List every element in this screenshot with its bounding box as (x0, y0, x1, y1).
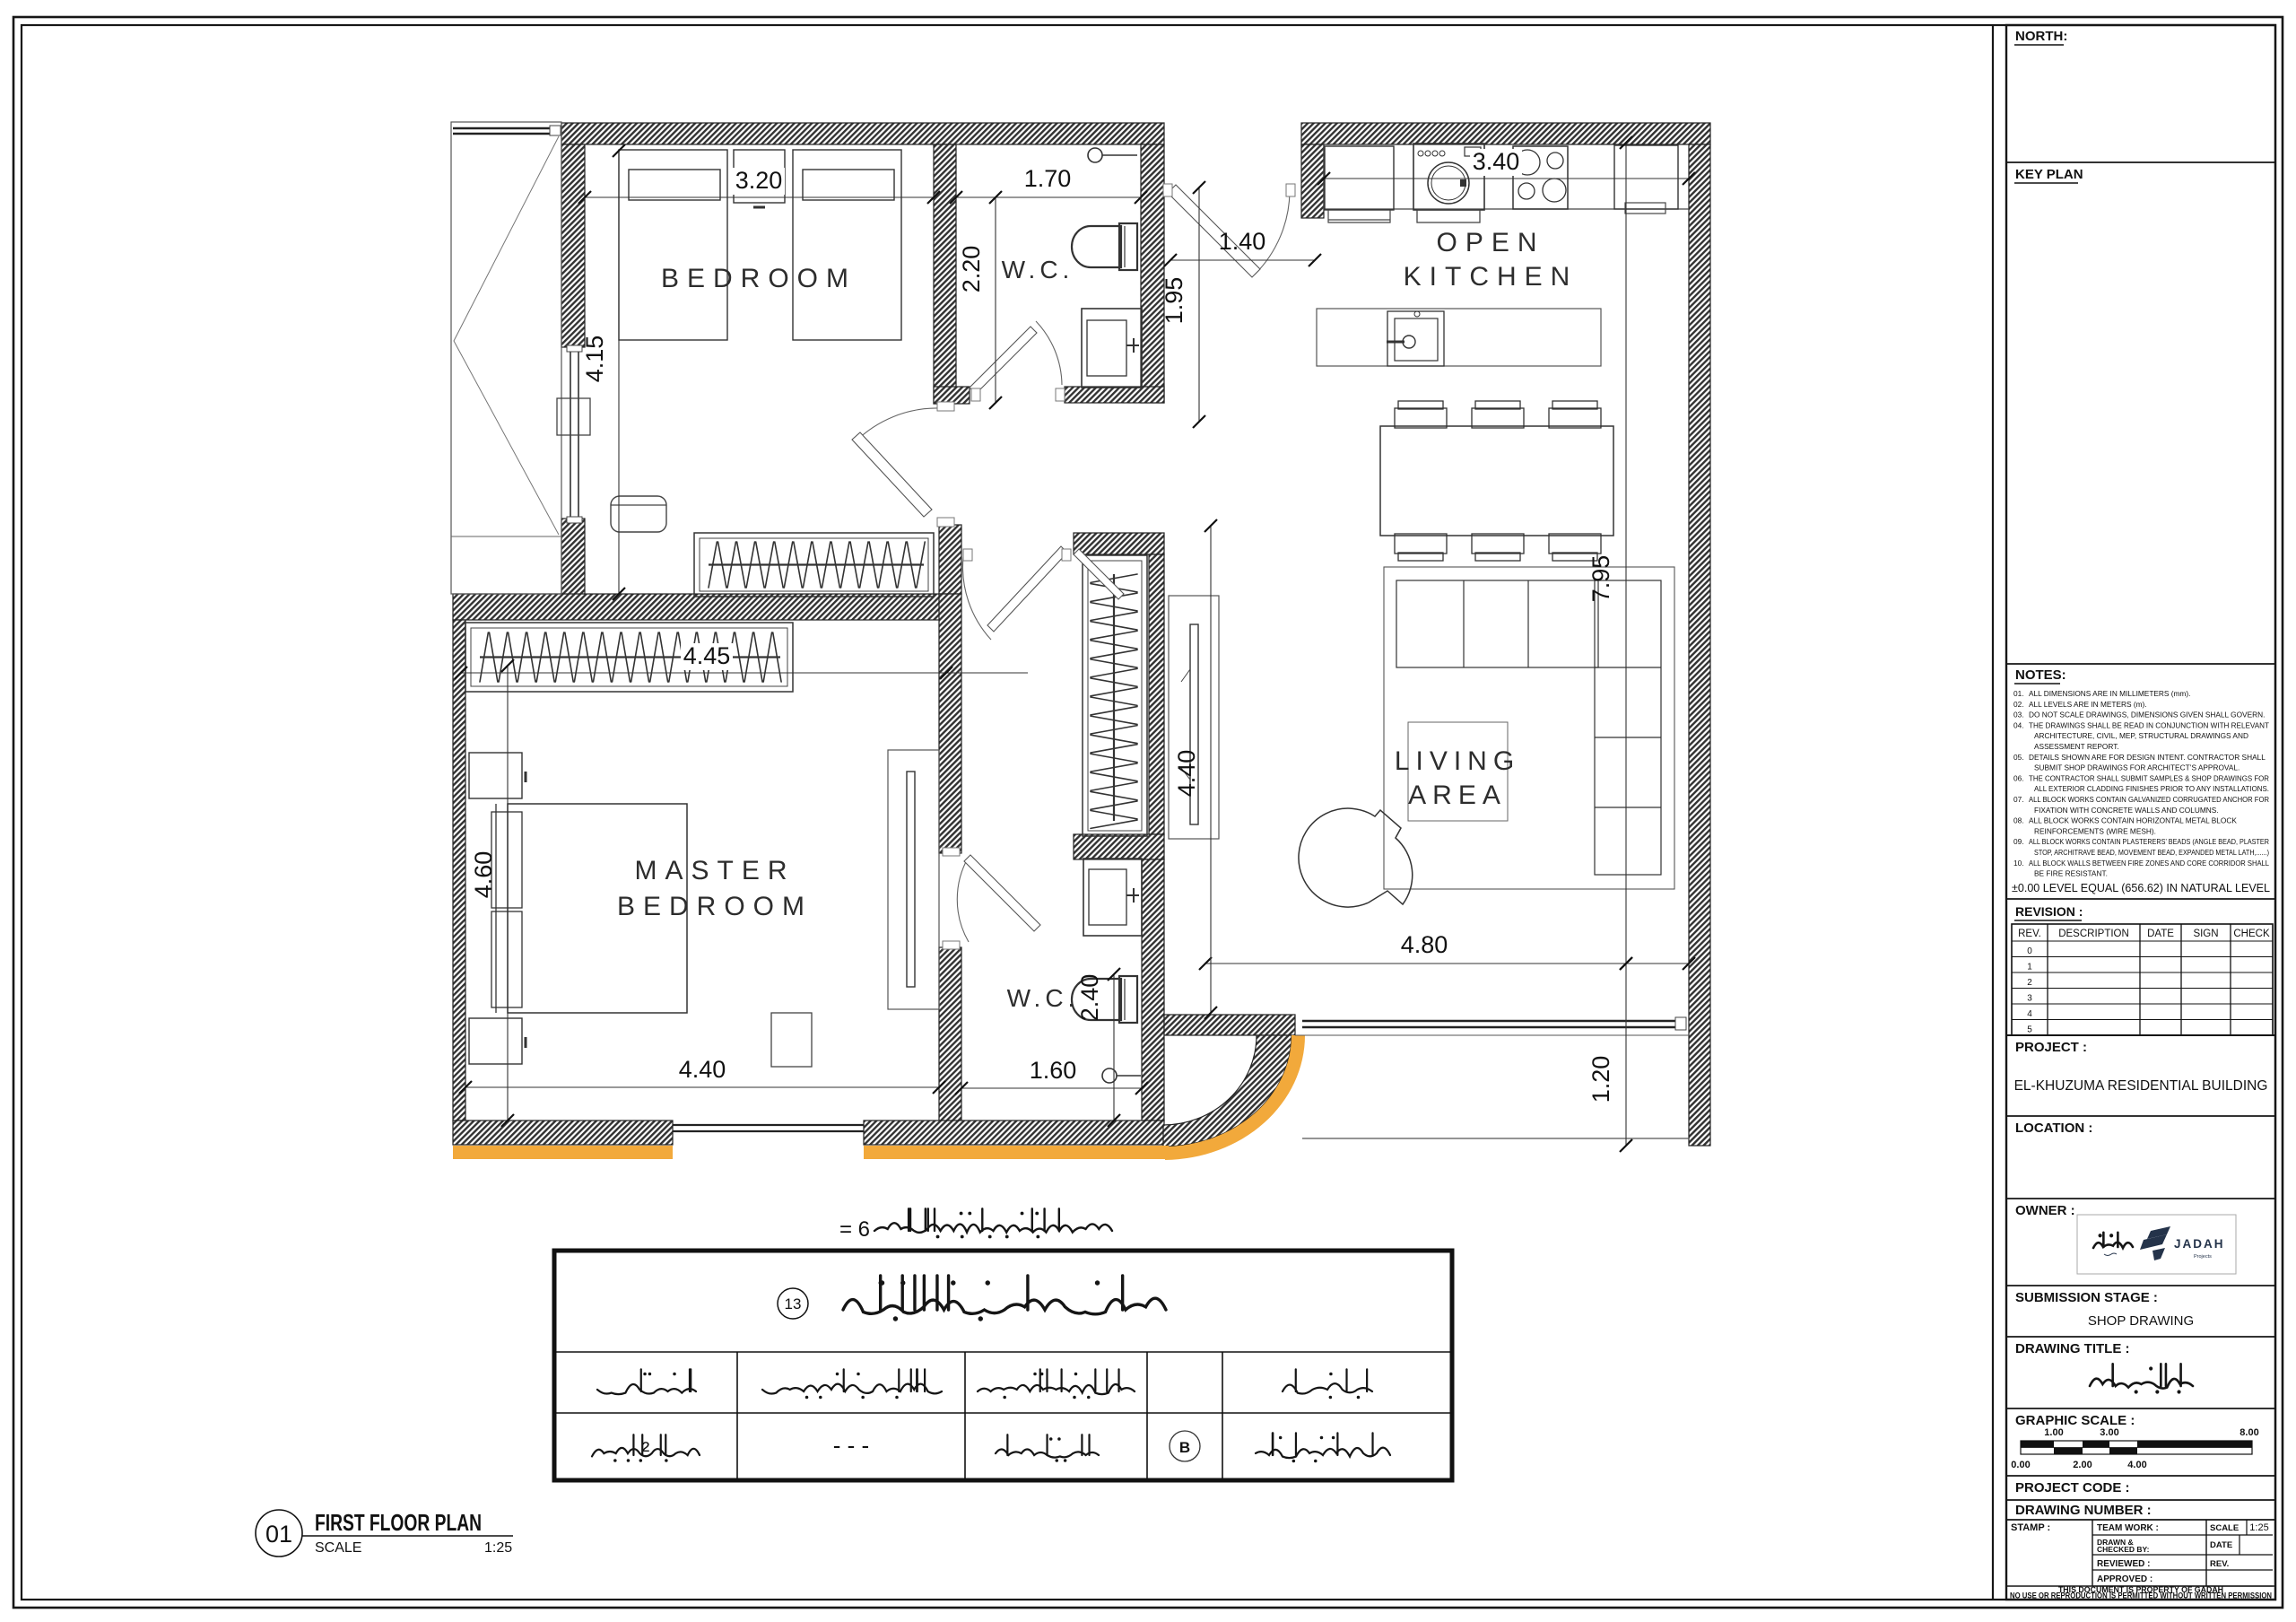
svg-text:STAMP :: STAMP : (2011, 1522, 2050, 1533)
svg-text:SCALE: SCALE (2210, 1523, 2239, 1533)
svg-text:REVISION :: REVISION : (2015, 904, 2083, 919)
svg-text:03.: 03. (2013, 711, 2024, 719)
svg-text:1: 1 (2027, 963, 2032, 972)
svg-text:FIXATION WITH CONCRETE WALLS A: FIXATION WITH CONCRETE WALLS AND COLUMNS… (2034, 806, 2219, 815)
svg-text:7.95: 7.95 (1587, 555, 1614, 603)
svg-text:06.: 06. (2013, 773, 2024, 782)
svg-text:ASSESSMENT REPORT.: ASSESSMENT REPORT. (2034, 742, 2119, 751)
svg-text:ALL BLOCK WORKS CONTAIN HORIZO: ALL BLOCK WORKS CONTAIN HORIZONTAL METAL… (2029, 816, 2237, 825)
svg-text:MASTER: MASTER (634, 856, 795, 885)
svg-text:13: 13 (785, 1295, 802, 1312)
svg-text:= 6: = 6 (839, 1217, 870, 1242)
svg-text:4.15: 4.15 (581, 336, 608, 383)
svg-text:8.00: 8.00 (2239, 1427, 2258, 1438)
svg-text:LOCATION :: LOCATION : (2015, 1121, 2092, 1136)
svg-text:ALL EXTERIOR CLADDING FINISHES: ALL EXTERIOR CLADDING FINISHES PRIOR TO … (2034, 784, 2269, 793)
svg-text:ALL BLOCK WORKS CONTAIN PLASTE: ALL BLOCK WORKS CONTAIN PLASTERERS’ BEAD… (2029, 837, 2269, 846)
svg-text:ALL LEVELS ARE IN METERS (m).: ALL LEVELS ARE IN METERS (m). (2029, 700, 2147, 709)
svg-text:1.95: 1.95 (1161, 277, 1187, 325)
svg-text:SUBMIT SHOP DRAWINGS FOR ARCHI: SUBMIT SHOP DRAWINGS FOR ARCHITECT’S APP… (2034, 763, 2239, 772)
svg-text:1.00: 1.00 (2044, 1427, 2063, 1438)
svg-text:CHECKED BY:: CHECKED BY: (2097, 1545, 2150, 1554)
svg-text:W.C.: W.C. (1007, 984, 1080, 1012)
svg-text:PROJECT CODE :: PROJECT CODE : (2015, 1480, 2130, 1496)
svg-text:W.C.: W.C. (1002, 256, 1074, 283)
svg-text:09.: 09. (2013, 837, 2024, 846)
svg-text:1:25: 1:25 (484, 1540, 512, 1556)
svg-text:KITCHEN: KITCHEN (1404, 262, 1578, 292)
svg-text:1:25: 1:25 (2249, 1522, 2268, 1533)
svg-text:KEY PLAN: KEY PLAN (2015, 167, 2083, 182)
svg-text:ALL BLOCK WORKS CONTAIN GALVAN: ALL BLOCK WORKS CONTAIN GALVANIZED CORRU… (2029, 795, 2269, 804)
svg-text:01: 01 (265, 1521, 292, 1548)
svg-text:4.60: 4.60 (470, 851, 497, 899)
svg-text:4: 4 (2027, 1009, 2032, 1019)
svg-text:OWNER :: OWNER : (2015, 1203, 2075, 1218)
svg-text:BEDROOM: BEDROOM (661, 264, 857, 293)
svg-text:THE CONTRACTOR SHALL SUBMIT S: THE CONTRACTOR SHALL SUBMIT SAMPLES & SH… (2029, 773, 2269, 782)
svg-text:0.00: 0.00 (2011, 1460, 2030, 1470)
svg-text:LIVING: LIVING (1395, 746, 1520, 776)
svg-text:NORTH:: NORTH: (2015, 29, 2067, 44)
svg-text:EL-KHUZUMA RESIDENTIAL BUILDIN: EL-KHUZUMA RESIDENTIAL BUILDING (2014, 1078, 2268, 1094)
svg-text:05.: 05. (2013, 753, 2024, 762)
svg-text:±0.00 LEVEL EQUAL (656.62) IN: ±0.00 LEVEL EQUAL (656.62) IN NATURAL LE… (2012, 881, 2270, 894)
svg-text:TEAM WORK :: TEAM WORK : (2097, 1523, 2159, 1533)
svg-text:ALL DIMENSIONS ARE IN MILLIMET: ALL DIMENSIONS ARE IN MILLIMETERS (mm). (2029, 689, 2190, 698)
svg-text:5: 5 (2027, 1025, 2032, 1035)
svg-text:SUBMISSION STAGE :: SUBMISSION STAGE : (2015, 1290, 2158, 1305)
svg-text:10.: 10. (2013, 859, 2024, 868)
svg-text:REV.: REV. (2210, 1559, 2229, 1569)
svg-text:4.40: 4.40 (679, 1056, 726, 1083)
svg-text:3: 3 (2027, 994, 2032, 1004)
svg-text:3.40: 3.40 (1473, 148, 1520, 175)
svg-text:SCALE: SCALE (315, 1540, 361, 1556)
svg-text:07.: 07. (2013, 795, 2024, 804)
svg-text:08.: 08. (2013, 816, 2024, 825)
svg-text:REVIEWED :: REVIEWED : (2097, 1559, 2150, 1569)
svg-text:0: 0 (2027, 946, 2032, 956)
svg-text:REINFORCEMENTS (WIRE MESH).: REINFORCEMENTS (WIRE MESH). (2034, 826, 2156, 835)
svg-text:DRAWING NUMBER :: DRAWING NUMBER : (2015, 1503, 2152, 1518)
svg-text:NOTES:: NOTES: (2015, 667, 2066, 683)
svg-text:4.00: 4.00 (2127, 1460, 2146, 1470)
svg-text:ALL BLOCK WALLS BETWEEN FIRE Z: ALL BLOCK WALLS BETWEEN FIRE ZONES AND C… (2029, 859, 2269, 868)
svg-text:ARCHITECTURE, CIVIL, MEP, STRU: ARCHITECTURE, CIVIL, MEP, STRUCTURAL DRA… (2034, 731, 2248, 740)
svg-text:2.40: 2.40 (1076, 974, 1103, 1022)
svg-text:3.20: 3.20 (735, 167, 783, 194)
svg-text:DO NOT SCALE DRAWINGS, DIMENSI: DO NOT SCALE DRAWINGS, DIMENSIONS GIVEN … (2029, 711, 2265, 719)
svg-text:1.70: 1.70 (1024, 165, 1072, 192)
svg-text:THE DRAWINGS SHALL BE READ IN: THE DRAWINGS SHALL BE READ IN CONJUNCTIO… (2029, 720, 2269, 729)
svg-text:3.00: 3.00 (2100, 1427, 2118, 1438)
svg-text:CHECK: CHECK (2233, 929, 2270, 939)
svg-text:DRAWING TITLE :: DRAWING TITLE : (2015, 1341, 2130, 1356)
svg-text:BE FIRE RESISTANT.: BE FIRE RESISTANT. (2034, 869, 2108, 878)
svg-text:STOP, ARCHITRAVE BEAD, MOVEMEN: STOP, ARCHITRAVE BEAD, MOVEMENT BEAD, EX… (2034, 848, 2269, 857)
svg-text:2.00: 2.00 (2073, 1460, 2092, 1470)
svg-text:NO USE OR REPRODUCTION IS PERM: NO USE OR REPRODUCTION IS PERMITTED WITH… (2010, 1591, 2272, 1600)
svg-text:Projects: Projects (2194, 1254, 2212, 1260)
svg-text:1.60: 1.60 (1030, 1057, 1077, 1084)
svg-text:4.80: 4.80 (1401, 931, 1448, 958)
svg-text:BEDROOM: BEDROOM (617, 892, 813, 921)
svg-text:APPROVED :: APPROVED : (2097, 1574, 2152, 1584)
svg-text:FIRST FLOOR PLAN: FIRST FLOOR PLAN (315, 1509, 482, 1536)
svg-text:OPEN: OPEN (1436, 228, 1544, 257)
svg-text:DESCRIPTION: DESCRIPTION (2058, 929, 2129, 939)
svg-text:04.: 04. (2013, 720, 2024, 729)
svg-text:DATE: DATE (2147, 929, 2174, 939)
svg-text:4.40: 4.40 (1173, 750, 1200, 798)
svg-text:1.20: 1.20 (1587, 1056, 1614, 1103)
svg-text:DATE: DATE (2210, 1540, 2232, 1550)
svg-text:JADAH: JADAH (2174, 1237, 2225, 1251)
svg-text:AREA: AREA (1408, 780, 1507, 810)
svg-text:2: 2 (2027, 978, 2032, 988)
svg-text:REV.: REV. (2018, 929, 2041, 939)
svg-text:DETAILS SHOWN ARE FOR DESIGN I: DETAILS SHOWN ARE FOR DESIGN INTENT. CON… (2029, 753, 2266, 762)
svg-text:01.: 01. (2013, 689, 2024, 698)
svg-text:SIGN: SIGN (2193, 929, 2218, 939)
svg-text:02.: 02. (2013, 700, 2024, 709)
svg-text:PROJECT :: PROJECT : (2015, 1040, 2087, 1055)
svg-text:GRAPHIC SCALE :: GRAPHIC SCALE : (2015, 1413, 2135, 1428)
svg-text:4.45: 4.45 (683, 642, 731, 669)
svg-text:- - -: - - - (833, 1432, 869, 1459)
svg-text:1.40: 1.40 (1219, 228, 1266, 255)
svg-text:SHOP DRAWING: SHOP DRAWING (2088, 1313, 2194, 1329)
svg-text:2.20: 2.20 (958, 246, 985, 293)
svg-text:B: B (1179, 1439, 1190, 1456)
